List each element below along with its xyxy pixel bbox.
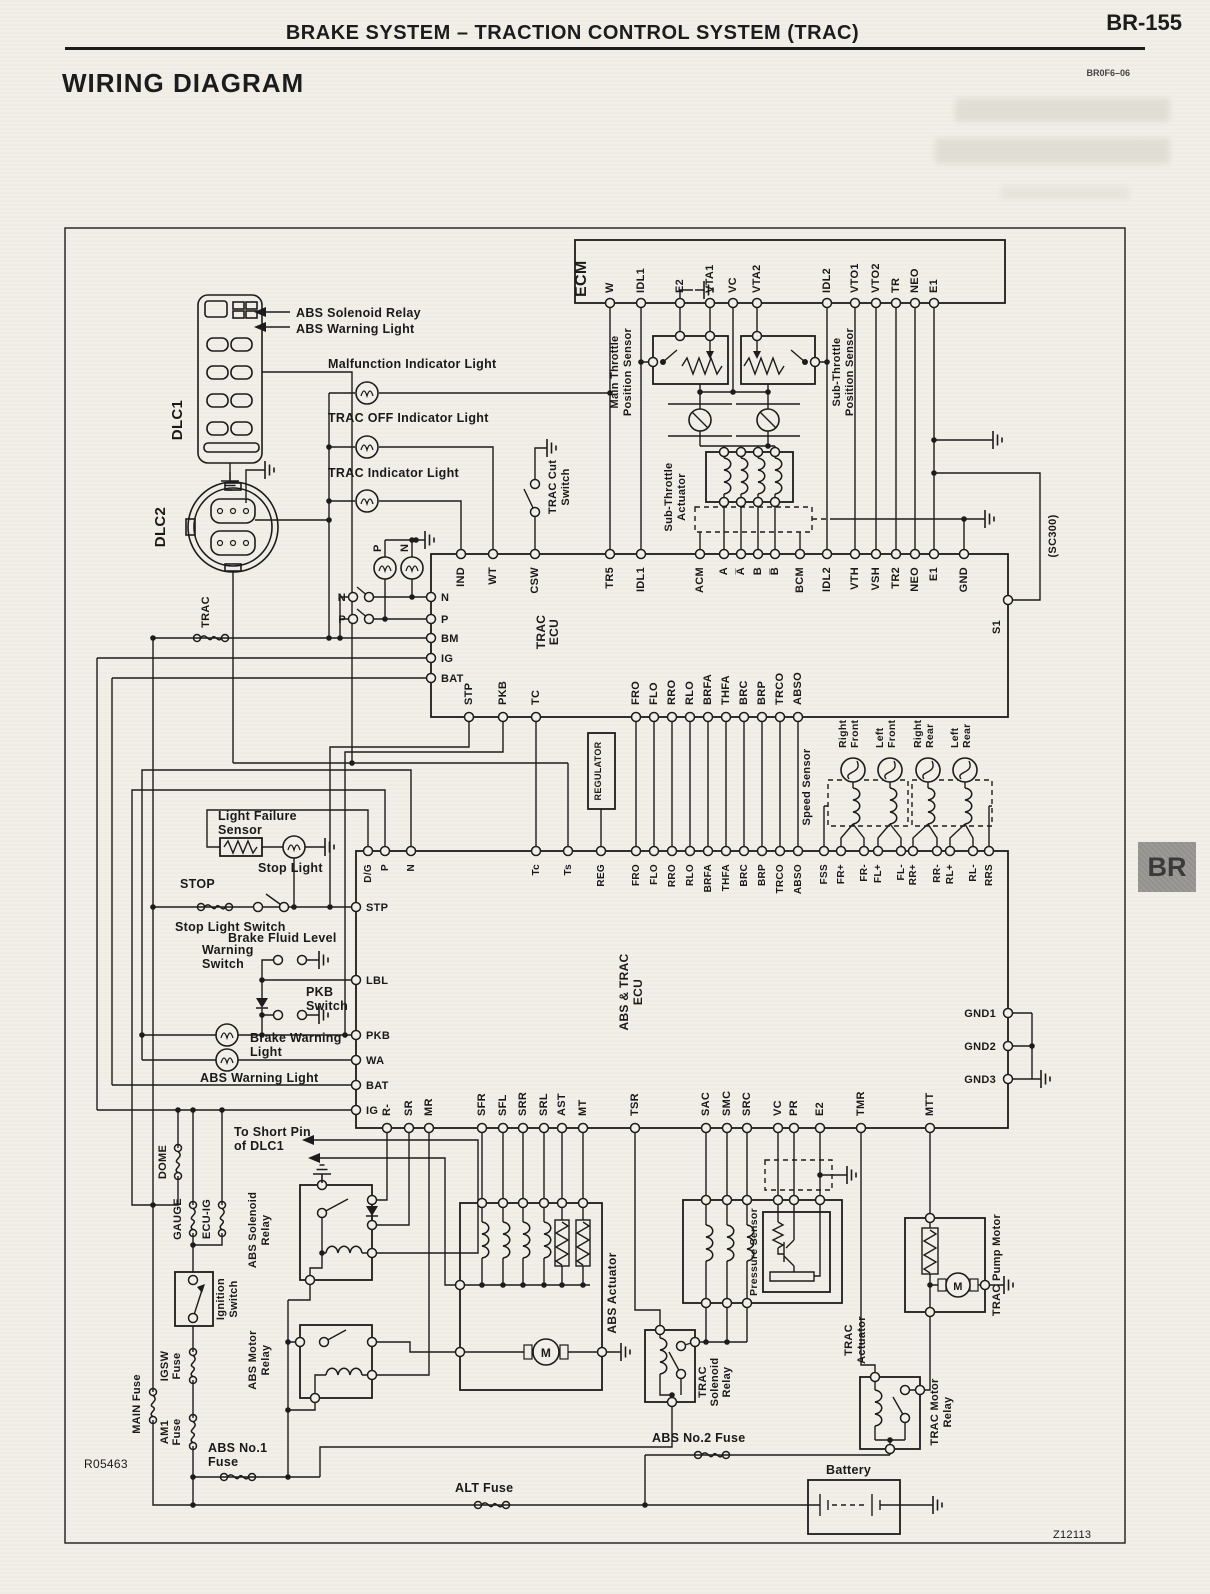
pkb-switch-label: PKBSwitch bbox=[306, 985, 348, 1013]
junction-dot bbox=[259, 977, 265, 983]
trac-cut-switch-label: TRAC CutSwitch bbox=[547, 460, 572, 514]
terminal bbox=[704, 847, 713, 856]
coil-icon bbox=[724, 458, 731, 494]
ecm-term-vto2: VTO2 bbox=[870, 263, 882, 293]
terminal bbox=[774, 1124, 783, 1133]
abs-term-rro: RRO bbox=[667, 864, 678, 887]
light-failure-sensor-label: Light FailureSensor bbox=[218, 809, 297, 837]
terminal bbox=[740, 847, 749, 856]
junction-dot bbox=[961, 516, 967, 522]
terminal bbox=[872, 299, 881, 308]
terminal bbox=[926, 1214, 935, 1223]
alt-fuse-label: ALT Fuse bbox=[455, 1481, 513, 1495]
junction-dot bbox=[150, 1202, 156, 1208]
trac-term-idl1: IDL1 bbox=[635, 567, 647, 592]
terminal bbox=[823, 550, 832, 559]
abs-term-sfr: SFR bbox=[476, 1093, 488, 1116]
ground-icon bbox=[924, 1496, 942, 1514]
abs-term-brp: BRP bbox=[757, 864, 768, 886]
terminal bbox=[676, 332, 685, 341]
ecu-ig-fuse-label: ECU-IG bbox=[201, 1199, 213, 1239]
terminal bbox=[1004, 1042, 1013, 1051]
coil-icon bbox=[482, 1222, 489, 1258]
terminal bbox=[704, 713, 713, 722]
terminal bbox=[306, 1276, 315, 1285]
terminal bbox=[706, 299, 715, 308]
terminal bbox=[1004, 596, 1013, 605]
trac-indicator-label: TRAC Indicator Light bbox=[328, 466, 460, 480]
dlc1-callout-arrow bbox=[254, 322, 266, 332]
terminal bbox=[532, 847, 541, 856]
abs-term-vc: VC bbox=[772, 1100, 784, 1116]
bulb-icon bbox=[356, 436, 378, 458]
symbol-layer bbox=[139, 281, 1050, 1514]
coil-icon bbox=[503, 1222, 510, 1258]
terminal bbox=[677, 1370, 686, 1379]
terminal bbox=[558, 1124, 567, 1133]
speed-sensor-icon bbox=[878, 758, 902, 782]
terminal bbox=[981, 1281, 990, 1290]
terminal bbox=[349, 615, 358, 624]
speed-sensor-label: Speed Sensor bbox=[801, 748, 813, 825]
terminal bbox=[811, 358, 820, 367]
terminal bbox=[790, 1124, 799, 1133]
terminal bbox=[794, 713, 803, 722]
diagram-frame bbox=[65, 228, 1125, 1543]
trac-term-a-bar: A̅ bbox=[735, 567, 747, 575]
abs-term-p: P bbox=[380, 864, 391, 871]
abs-motor-relay-label: ABS MotorRelay bbox=[247, 1330, 272, 1390]
junction-dot bbox=[337, 635, 343, 641]
terminal bbox=[691, 1338, 700, 1347]
terminal bbox=[381, 847, 390, 856]
terminal bbox=[632, 847, 641, 856]
terminal bbox=[901, 1414, 910, 1423]
bulb-icon bbox=[401, 557, 423, 579]
speed-sensor-icon bbox=[916, 758, 940, 782]
dlc2-pin bbox=[218, 541, 223, 546]
trac-term-brfa: BRFA bbox=[702, 674, 714, 705]
trac-actuator-wires bbox=[706, 1128, 838, 1342]
terminal bbox=[872, 550, 881, 559]
junction-dot bbox=[150, 904, 156, 910]
terminal bbox=[519, 1199, 528, 1208]
sub-throttle-actuator-label: Sub-ThrottleActuator bbox=[663, 463, 688, 532]
abs-term-srl: SRL bbox=[538, 1093, 550, 1116]
terminal bbox=[456, 1281, 465, 1290]
bulb-icon bbox=[216, 1024, 238, 1046]
bulb-icon bbox=[356, 382, 378, 404]
terminal bbox=[857, 1124, 866, 1133]
junction-dot bbox=[730, 389, 736, 395]
abs-term-rr-minus: RR- bbox=[932, 864, 943, 883]
trac-term-p: P bbox=[441, 614, 449, 626]
ignition-switch-arrow bbox=[197, 1284, 205, 1293]
trac-term-vth: VTH bbox=[849, 567, 861, 590]
coil-icon bbox=[706, 1225, 713, 1261]
trac-term-brc: BRC bbox=[738, 680, 750, 705]
ecm-term-idl2: IDL2 bbox=[821, 268, 833, 293]
ecm-term-idl1: IDL1 bbox=[635, 268, 647, 293]
trac-term-b: B bbox=[752, 567, 764, 575]
terminal bbox=[743, 1299, 752, 1308]
motor-tab bbox=[938, 1279, 946, 1291]
terminal bbox=[349, 593, 358, 602]
terminal bbox=[352, 1106, 361, 1115]
abs-term-sr: SR bbox=[403, 1100, 415, 1116]
abs-term-gnd3: GND3 bbox=[964, 1074, 996, 1086]
trac-cut-switch-wires bbox=[524, 448, 538, 554]
terminal bbox=[189, 1314, 198, 1323]
terminal bbox=[368, 1249, 377, 1258]
terminal bbox=[519, 1124, 528, 1133]
abs-term-sfl: SFL bbox=[497, 1094, 509, 1116]
junction-dot bbox=[326, 517, 332, 523]
trac-term-stp: STP bbox=[463, 683, 475, 705]
terminal bbox=[737, 498, 746, 507]
abs-warning-light-callout: ABS Warning Light bbox=[296, 322, 415, 336]
junction-dot bbox=[190, 1242, 196, 1248]
igsw-fuse-label: IGSWFuse bbox=[159, 1350, 183, 1381]
terminal bbox=[558, 1199, 567, 1208]
terminal bbox=[478, 1199, 487, 1208]
terminal bbox=[254, 903, 263, 912]
abs-term-mtt: MTT bbox=[924, 1092, 936, 1116]
terminal bbox=[816, 1124, 825, 1133]
abs-term-wa: WA bbox=[366, 1055, 384, 1067]
abs-term-fro: FRO bbox=[631, 864, 642, 886]
dlc2-connector bbox=[188, 482, 278, 572]
main-tps-label: Main ThrottlePosition Sensor bbox=[609, 327, 634, 416]
terminal bbox=[776, 847, 785, 856]
trac-term-gnd: GND bbox=[958, 567, 970, 592]
ground-icon bbox=[612, 1343, 630, 1361]
bulb-icon bbox=[283, 836, 305, 858]
dlc2-pin bbox=[244, 541, 249, 546]
terminal bbox=[722, 713, 731, 722]
trac-term-acm: ACM bbox=[694, 567, 706, 593]
terminal bbox=[650, 847, 659, 856]
p-bulb-label: P bbox=[372, 544, 384, 552]
resistor-zigzag bbox=[556, 1222, 568, 1265]
terminal bbox=[499, 1199, 508, 1208]
fuse-icon bbox=[190, 1349, 197, 1384]
trac-term-rlo: RLO bbox=[684, 681, 696, 705]
terminal bbox=[702, 1124, 711, 1133]
terminal bbox=[427, 674, 436, 683]
trac-term-thfa: THFA bbox=[720, 675, 732, 705]
ground-icon bbox=[1032, 1070, 1050, 1088]
terminal bbox=[933, 847, 942, 856]
terminal bbox=[720, 550, 729, 559]
terminal bbox=[930, 299, 939, 308]
ecm-term-e2: E2 bbox=[674, 279, 686, 293]
ground-icon bbox=[838, 1166, 856, 1184]
terminal bbox=[631, 1124, 640, 1133]
terminal bbox=[457, 550, 466, 559]
dlc2-pin bbox=[244, 509, 249, 514]
terminal bbox=[737, 550, 746, 559]
coil-icon bbox=[853, 788, 860, 824]
terminal bbox=[465, 713, 474, 722]
pkb-diode bbox=[256, 998, 268, 1008]
trac-pump-motor-label: TRAC Pump Motor bbox=[991, 1213, 1003, 1316]
terminal bbox=[456, 1348, 465, 1357]
wiring-diagram-canvas: ECMWIDL1E2VTA1VCVTA2IDL2VTO1VTO2TRNEOE1M… bbox=[0, 0, 1210, 1594]
terminal bbox=[318, 1209, 327, 1218]
abs-term-fr-plus: FR+ bbox=[836, 864, 847, 884]
terminal bbox=[816, 1196, 825, 1205]
trac-pump-m-label: M bbox=[953, 1281, 962, 1293]
terminal bbox=[274, 956, 283, 965]
bottom-power-wires bbox=[193, 1477, 924, 1516]
terminal bbox=[531, 480, 540, 489]
abs-term-abso: ABSO bbox=[793, 864, 804, 894]
terminal bbox=[926, 1124, 935, 1133]
abs-term-mt: MT bbox=[577, 1100, 589, 1116]
short-pin-arrow bbox=[308, 1153, 320, 1163]
ecm-term-vc: VC bbox=[727, 277, 739, 293]
terminal bbox=[794, 847, 803, 856]
terminal bbox=[368, 1338, 377, 1347]
ecm-label: ECM bbox=[573, 261, 590, 297]
terminal bbox=[969, 847, 978, 856]
fuse-icon bbox=[190, 1202, 197, 1237]
terminal bbox=[892, 299, 901, 308]
terminal bbox=[820, 847, 829, 856]
junction-dot bbox=[541, 1282, 547, 1288]
terminal bbox=[702, 1196, 711, 1205]
warning-switch-label: WarningSwitch bbox=[202, 943, 254, 971]
terminal bbox=[1004, 1009, 1013, 1018]
trac-term-n: N bbox=[441, 592, 449, 604]
terminal bbox=[280, 903, 289, 912]
relay-diode bbox=[366, 1206, 378, 1216]
abs-term-fl-plus: FL+ bbox=[873, 864, 884, 883]
ref-left-code: R05463 bbox=[84, 1457, 128, 1471]
abs-term-tc: Tc bbox=[531, 864, 542, 876]
terminal bbox=[540, 1199, 549, 1208]
terminal bbox=[489, 550, 498, 559]
trac-term-brp: BRP bbox=[756, 681, 768, 705]
trac-term-ind: IND bbox=[455, 567, 467, 587]
bulb-icon bbox=[216, 1049, 238, 1071]
terminal bbox=[352, 976, 361, 985]
junction-dot bbox=[190, 1107, 196, 1113]
terminal bbox=[352, 1031, 361, 1040]
terminal bbox=[274, 1011, 283, 1020]
trac-pump-motor-box bbox=[905, 1218, 985, 1312]
terminal bbox=[597, 847, 606, 856]
abs-term-rl-plus: RL+ bbox=[945, 864, 956, 884]
junction-dot bbox=[285, 1407, 291, 1413]
coil-icon bbox=[660, 1338, 667, 1374]
trac-term-fro: FRO bbox=[630, 681, 642, 705]
terminal bbox=[364, 847, 373, 856]
terminal bbox=[930, 550, 939, 559]
malfunction-indicator-label: Malfunction Indicator Light bbox=[328, 357, 497, 371]
abs-term-gnd1: GND1 bbox=[964, 1008, 996, 1020]
terminal bbox=[668, 1398, 677, 1407]
sub-actuator-shield bbox=[695, 507, 812, 532]
abs-term-tsr: TSR bbox=[629, 1093, 641, 1116]
dome-fuse-label: DOME bbox=[157, 1145, 169, 1179]
terminal bbox=[851, 550, 860, 559]
terminal bbox=[668, 713, 677, 722]
trac-solenoid-relay-box bbox=[645, 1330, 695, 1402]
dlc2-pin bbox=[231, 541, 236, 546]
abs-term-pr: PR bbox=[788, 1100, 800, 1116]
terminal bbox=[352, 903, 361, 912]
abs-term-src: SRC bbox=[741, 1092, 753, 1116]
wheel-right-front-label: RightFront bbox=[837, 719, 861, 748]
abs-term-fr-minus: FR- bbox=[859, 864, 870, 882]
terminal bbox=[796, 550, 805, 559]
terminal bbox=[723, 1299, 732, 1308]
motor-tab bbox=[560, 1345, 568, 1359]
terminal bbox=[909, 847, 918, 856]
abs-solenoid-relay-box bbox=[300, 1185, 372, 1280]
junction-dot bbox=[409, 594, 415, 600]
abs-term-srr: SRR bbox=[517, 1092, 529, 1116]
terminal bbox=[637, 299, 646, 308]
terminal bbox=[823, 299, 832, 308]
ground-icon bbox=[416, 531, 434, 549]
abs-term-ts: Ts bbox=[563, 864, 574, 876]
abs-term-gnd2: GND2 bbox=[964, 1041, 996, 1053]
junction-dot bbox=[326, 498, 332, 504]
abs-trac-ecu-label: ABS & TRACECU bbox=[617, 953, 645, 1030]
trac-actuator-label: TRACActuator bbox=[843, 1316, 868, 1364]
junction-dot bbox=[931, 437, 937, 443]
trac-term-tr5: TR5 bbox=[604, 567, 616, 589]
wheel-left-front-label: LeftFront bbox=[874, 719, 898, 748]
terminal bbox=[368, 1221, 377, 1230]
ground-icon bbox=[313, 1165, 331, 1183]
terminal bbox=[296, 1338, 305, 1347]
dlc2-pin bbox=[218, 509, 223, 514]
terminal bbox=[365, 615, 374, 624]
terminal bbox=[754, 498, 763, 507]
terminal bbox=[771, 498, 780, 507]
terminal bbox=[901, 1386, 910, 1395]
abs-term-r-minus: R- bbox=[381, 1104, 393, 1116]
junction-dot bbox=[285, 1474, 291, 1480]
ecm-term-vta1: VTA1 bbox=[704, 264, 716, 293]
dlc2-label: DLC2 bbox=[152, 507, 169, 547]
trac-term-tr2: TR2 bbox=[890, 567, 902, 589]
junction-dot bbox=[327, 904, 333, 910]
junction-dot bbox=[139, 1032, 145, 1038]
ecm-term-tr: TR bbox=[890, 278, 902, 293]
brake-warning-light-label: Brake WarningLight bbox=[250, 1031, 342, 1059]
terminal bbox=[320, 1338, 329, 1347]
junction-dot bbox=[291, 904, 297, 910]
trac-term-b-bar: B̅ bbox=[769, 567, 781, 575]
trac-term-bat: BAT bbox=[441, 673, 464, 685]
terminal bbox=[871, 1373, 880, 1382]
terminal bbox=[837, 847, 846, 856]
regulator-label: REGULATOR bbox=[593, 741, 603, 800]
junction-dot bbox=[638, 359, 644, 365]
terminal bbox=[916, 1386, 925, 1395]
terminal bbox=[427, 593, 436, 602]
trac-off-indicator-label: TRAC OFF Indicator Light bbox=[328, 411, 489, 425]
junction-dot bbox=[931, 470, 937, 476]
ecm-term-vta2: VTA2 bbox=[751, 264, 763, 293]
abs-term-pkb: PKB bbox=[366, 1030, 390, 1042]
junction-dot bbox=[1029, 1043, 1035, 1049]
abs-solenoid-relay-callout: ABS Solenoid Relay bbox=[296, 306, 421, 320]
terminal bbox=[649, 358, 658, 367]
terminal bbox=[656, 1326, 665, 1335]
abs-term-smc: SMC bbox=[721, 1091, 733, 1116]
trac-term-a: A bbox=[718, 567, 730, 575]
terminal bbox=[499, 1124, 508, 1133]
resistor-zigzag bbox=[577, 1222, 589, 1265]
junction-dot bbox=[479, 1282, 485, 1288]
coil-icon bbox=[727, 1225, 734, 1261]
terminal bbox=[771, 448, 780, 457]
terminal bbox=[425, 1124, 434, 1133]
dlc2-pin bbox=[231, 509, 236, 514]
terminal bbox=[985, 847, 994, 856]
abs-actuator-label: ABS Actuator bbox=[605, 1252, 619, 1333]
ecm-term-neo: NEO bbox=[909, 268, 921, 293]
terminal bbox=[874, 847, 883, 856]
abs-term-stp: STP bbox=[366, 902, 388, 914]
abs-term-n: N bbox=[406, 864, 417, 872]
junction-dot bbox=[409, 537, 415, 543]
abs-term-fss: FSS bbox=[819, 864, 830, 884]
short-pin-wires bbox=[306, 1140, 478, 1285]
bulb-icon bbox=[374, 557, 396, 579]
trac-term-rro: RRO bbox=[666, 680, 678, 705]
terminal bbox=[753, 299, 762, 308]
coil-icon bbox=[741, 458, 748, 494]
ignition-switch-label: IgnitionSwitch bbox=[215, 1278, 240, 1320]
component-boxes bbox=[65, 228, 1125, 1543]
relay-wires bbox=[288, 1128, 455, 1477]
terminal bbox=[790, 1196, 799, 1205]
terminal bbox=[911, 299, 920, 308]
terminal bbox=[776, 713, 785, 722]
junction-dot bbox=[887, 1437, 893, 1443]
trac-term-csw: CSW bbox=[529, 567, 541, 594]
abs-term-ig: IG bbox=[366, 1105, 378, 1117]
terminal bbox=[637, 550, 646, 559]
rear-speed-sensor-shield bbox=[912, 780, 992, 826]
abs-term-dg: D/G bbox=[363, 864, 374, 883]
terminal bbox=[478, 1124, 487, 1133]
trac-term-tc: TC bbox=[530, 690, 542, 705]
am1-fuse-label: AM1Fuse bbox=[159, 1419, 183, 1446]
terminal bbox=[960, 550, 969, 559]
abs-term-rrs: RRS bbox=[984, 864, 995, 886]
junction-dot bbox=[259, 1012, 265, 1018]
terminal bbox=[723, 1196, 732, 1205]
abs-term-flo: FLO bbox=[649, 864, 660, 885]
trac-term-e1: E1 bbox=[928, 567, 940, 581]
terminal bbox=[722, 847, 731, 856]
terminal bbox=[368, 1196, 377, 1205]
sub-tps-label: Sub-ThrottlePosition Sensor bbox=[831, 327, 856, 416]
terminal bbox=[650, 713, 659, 722]
terminal bbox=[720, 498, 729, 507]
fuse-icon bbox=[219, 1202, 226, 1237]
tps-arrow bbox=[706, 351, 714, 359]
main-fuse-label: MAIN Fuse bbox=[131, 1374, 143, 1434]
